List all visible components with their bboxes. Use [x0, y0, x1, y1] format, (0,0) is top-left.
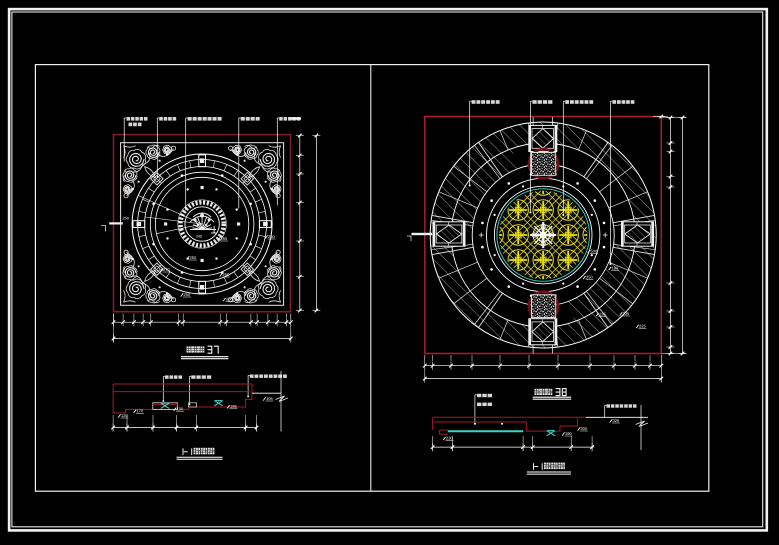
svg-text:105: 105 [266, 396, 273, 401]
svg-text:250: 250 [222, 272, 229, 277]
svg-text:255: 255 [220, 236, 227, 241]
svg-text:500: 500 [590, 249, 597, 254]
svg-text:235: 235 [622, 311, 629, 316]
svg-text:250: 250 [226, 297, 233, 302]
svg-text:170: 170 [136, 408, 143, 413]
svg-text:120: 120 [121, 413, 128, 418]
svg-text:135: 135 [599, 312, 606, 317]
svg-text:250: 250 [268, 234, 275, 239]
svg-text:225: 225 [639, 324, 646, 329]
svg-text:250: 250 [189, 255, 196, 260]
svg-text:250: 250 [122, 217, 128, 221]
svg-text:325: 325 [612, 418, 619, 423]
svg-text:300: 300 [580, 426, 587, 431]
svg-text:195: 195 [230, 404, 237, 409]
svg-text:190: 190 [565, 431, 572, 436]
svg-text:180: 180 [611, 266, 618, 271]
svg-text:250: 250 [586, 275, 593, 280]
svg-text:250: 250 [183, 292, 190, 297]
svg-text:130: 130 [176, 406, 183, 411]
svg-text:270: 270 [163, 267, 170, 272]
svg-text:245: 245 [196, 235, 202, 239]
